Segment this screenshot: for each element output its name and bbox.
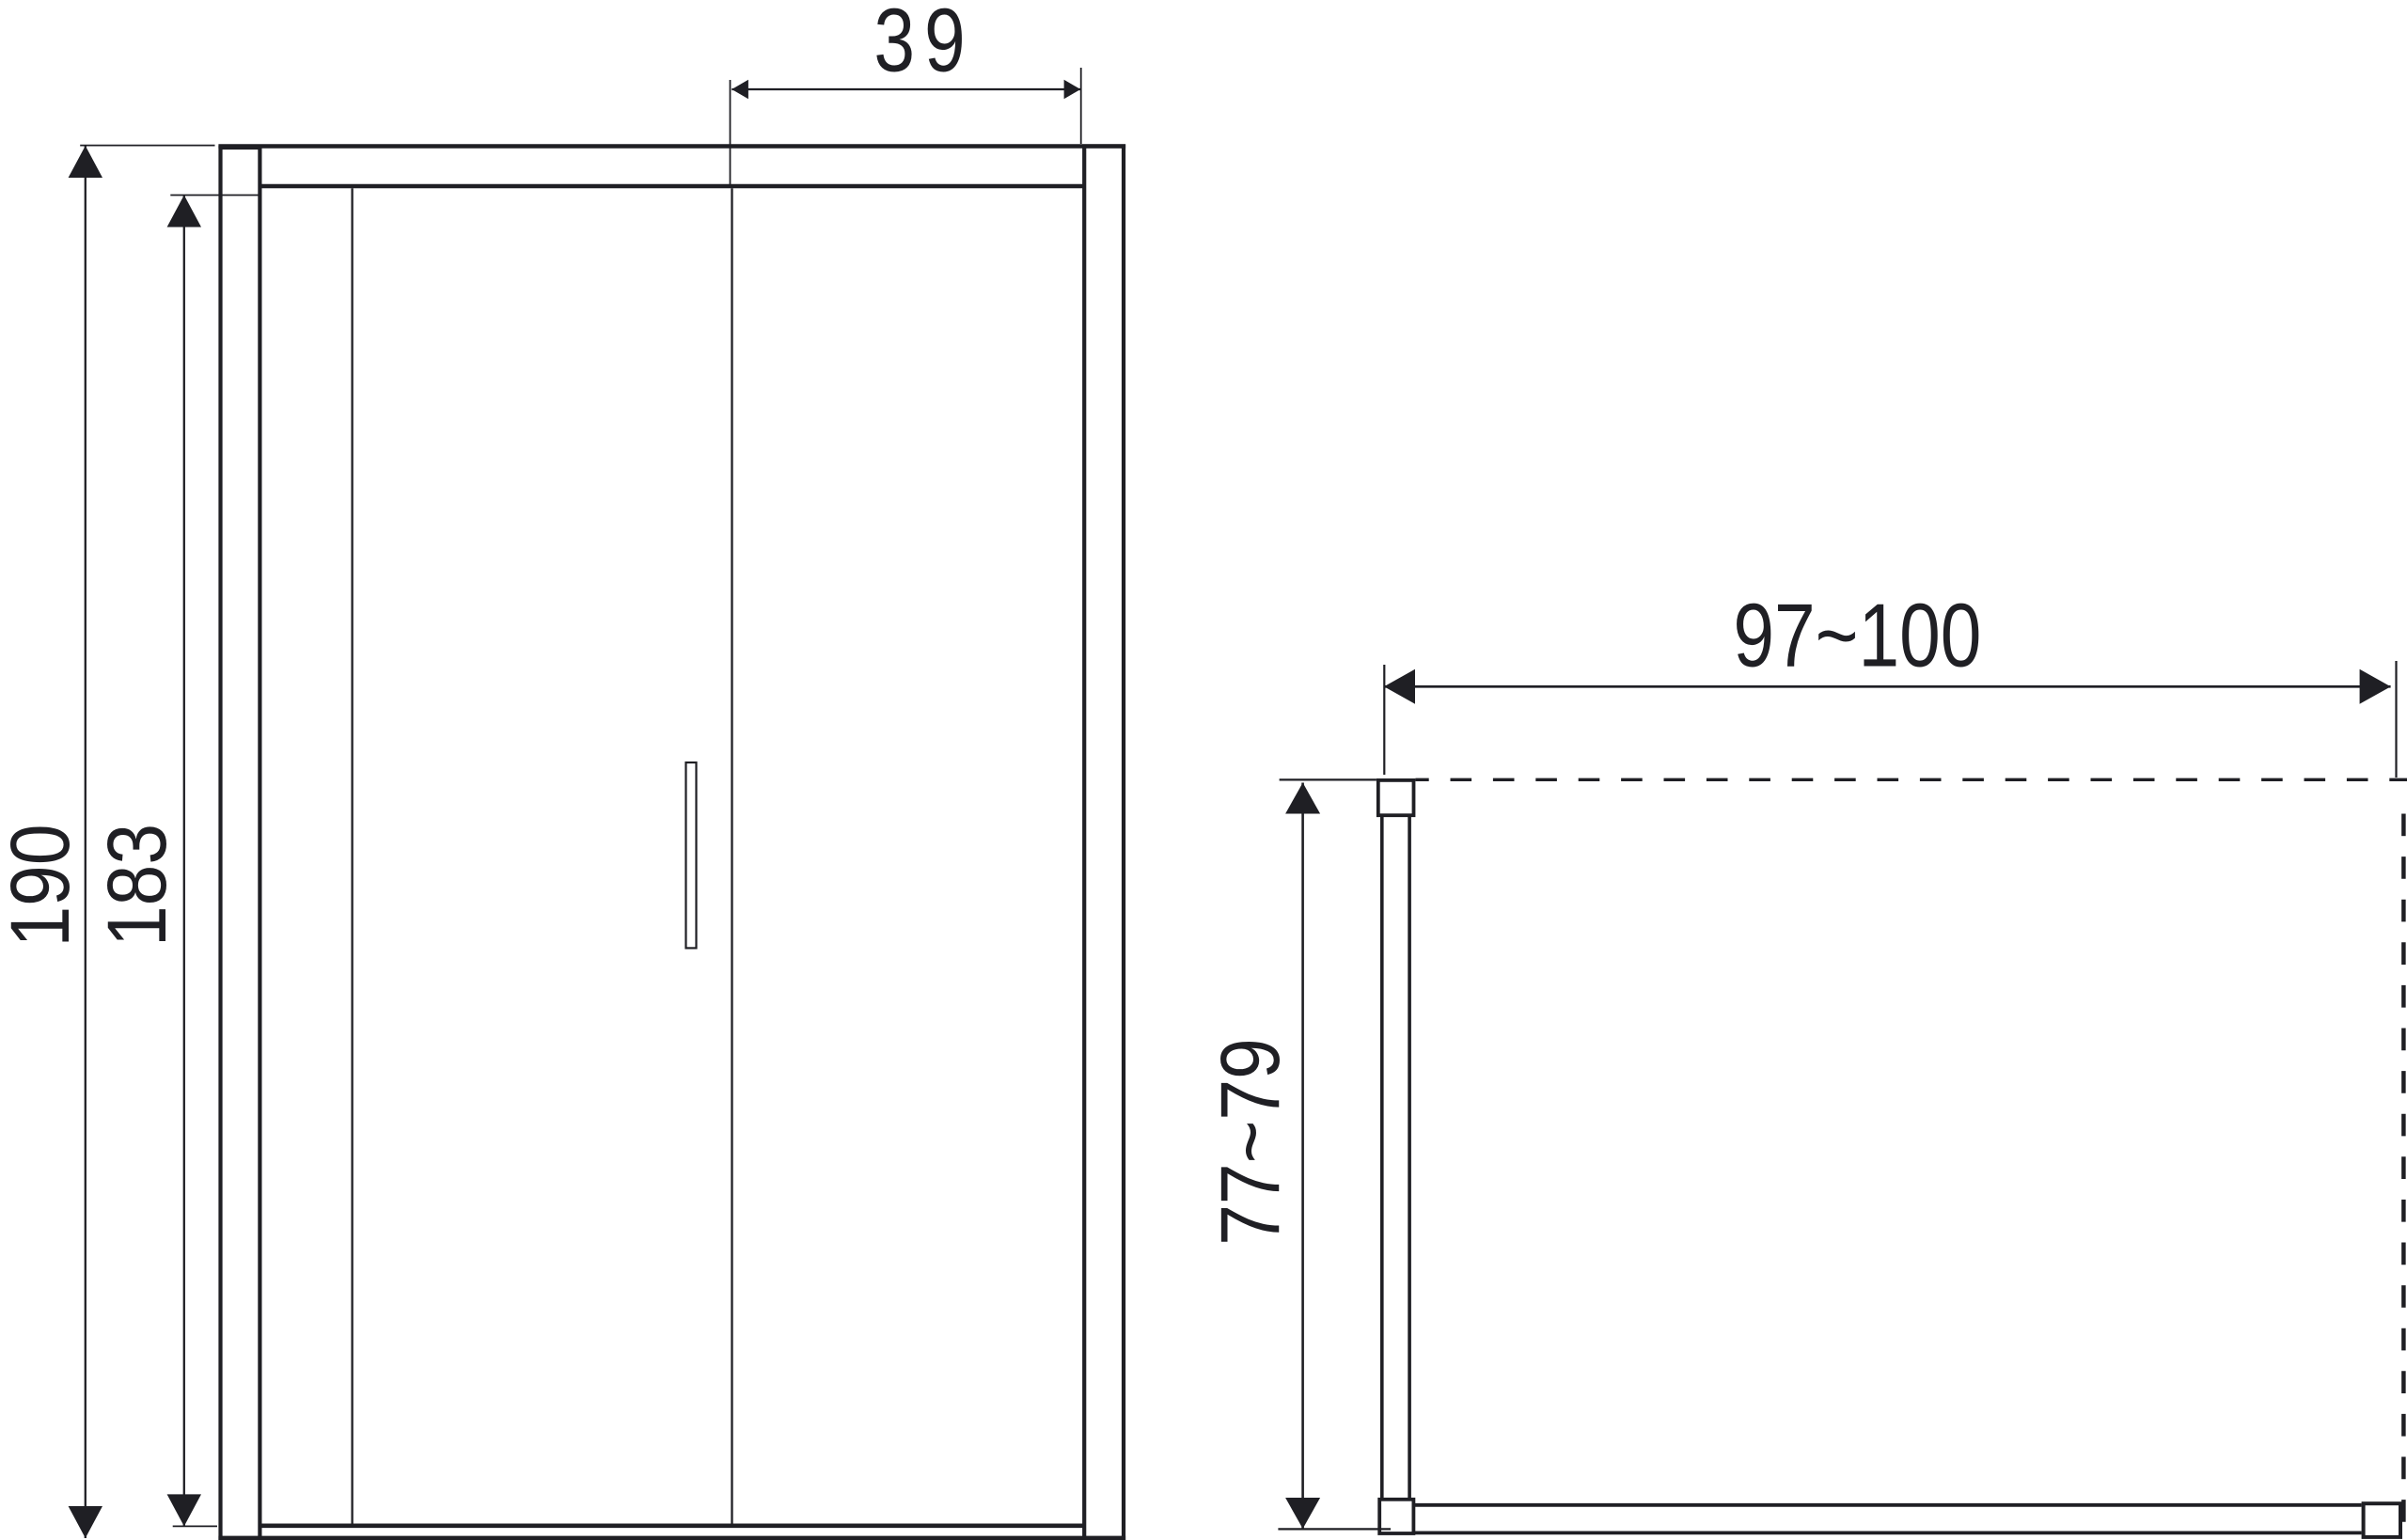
svg-text:97~100: 97~100 bbox=[1733, 585, 1981, 685]
svg-text:77~79: 77~79 bbox=[1203, 1038, 1298, 1245]
svg-text:183: 183 bbox=[90, 824, 184, 947]
svg-text:190: 190 bbox=[0, 825, 87, 948]
svg-text:39: 39 bbox=[873, 0, 974, 90]
